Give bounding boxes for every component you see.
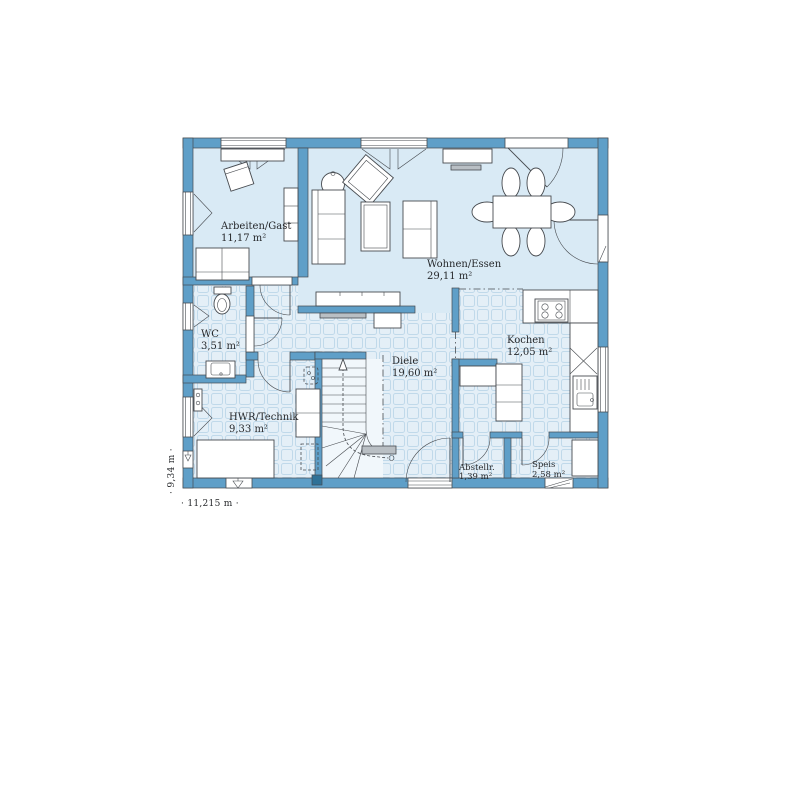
area-diele: 19,60 m² [392,368,437,379]
toilet [214,287,231,314]
guest-daybed [196,248,249,280]
label-hwr: HWR/Technik [229,412,299,423]
sideboard [316,292,400,306]
speis-shelf [572,440,598,476]
area-hwr: 9,33 m² [229,424,268,435]
label-speis: Speis [532,460,555,470]
dining-table [493,196,551,228]
floor-plan: Arbeiten/Gast 11,17 m² Wohnen/Essen 29,1… [0,0,800,800]
area-abstell: 1,39 m² [459,472,492,482]
sofa-small [403,201,437,258]
wardrobe [284,188,298,241]
bench [362,446,396,454]
area-wc: 3,51 m² [201,341,240,352]
desk [221,149,284,161]
area-kochen: 12,05 m² [507,347,552,358]
wc-sink [206,361,235,378]
dimension-height: · 9,34 m · [167,448,177,494]
hwr-counter [197,440,274,478]
dimension-width: · 11,215 m · [181,499,239,509]
label-wc: WC [201,329,219,340]
label-diele: Diele [392,356,418,367]
post [312,475,322,485]
area-wohnen: 29,11 m² [427,271,472,282]
stove [535,299,568,322]
kitchen-tall-cabinet [496,364,522,421]
vent-left [183,451,193,468]
coffee-table [361,202,390,251]
sofa-large [312,190,345,264]
kitchen-sink [573,376,597,409]
label-kochen: Kochen [507,335,545,346]
label-wohnen: Wohnen/Essen [427,259,502,270]
label-arbeiten: Arbeiten/Gast [220,221,291,232]
page: Arbeiten/Gast 11,17 m² Wohnen/Essen 29,1… [0,0,800,800]
wall-device [194,389,202,411]
fridge-cabinet [460,366,496,386]
washer-column [296,389,320,437]
area-arbeiten: 11,17 m² [221,233,266,244]
area-speis: 2,58 m² [532,470,565,480]
vent-bottom [226,478,252,488]
